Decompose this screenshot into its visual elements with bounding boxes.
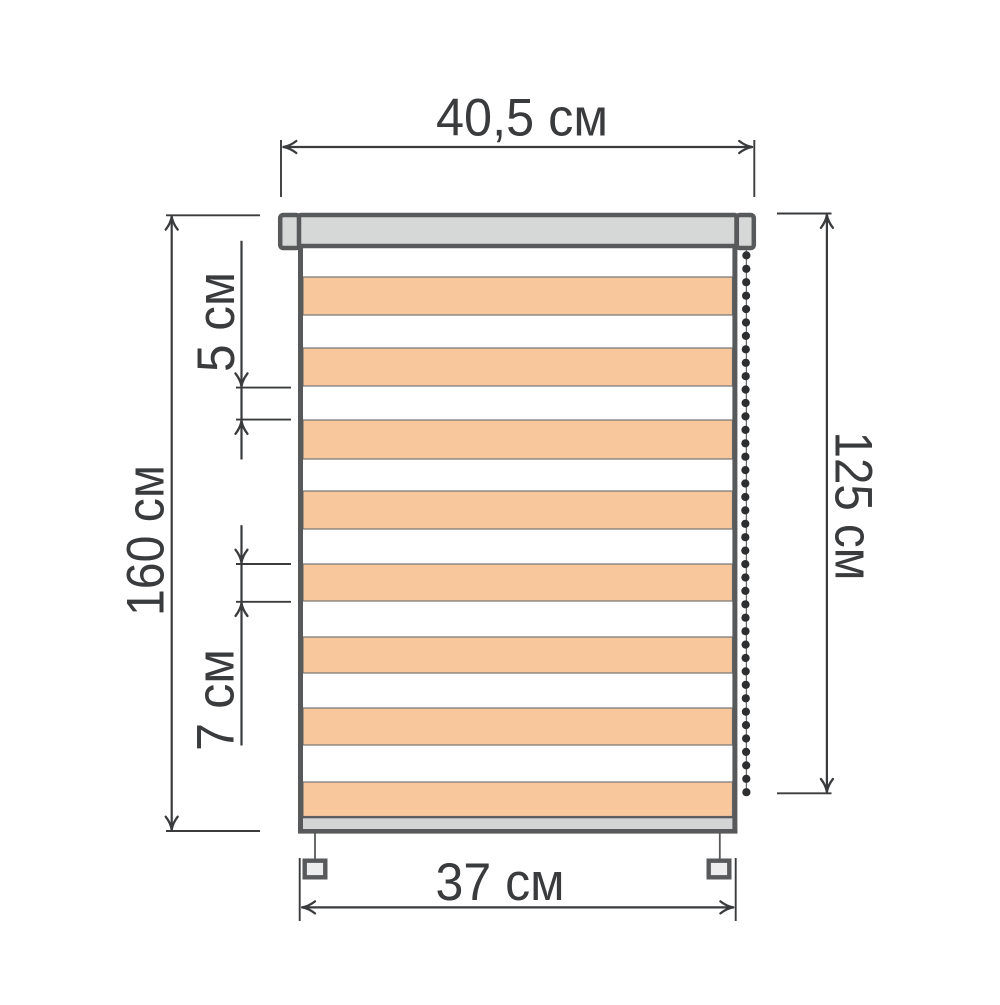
svg-text:7 см: 7 см — [187, 649, 246, 751]
svg-text:5 см: 5 см — [187, 272, 246, 372]
svg-text:160 см: 160 см — [117, 465, 176, 616]
svg-text:125 см: 125 см — [824, 432, 883, 581]
svg-text:37 см: 37 см — [436, 853, 565, 912]
svg-text:40,5 см: 40,5 см — [436, 89, 608, 148]
